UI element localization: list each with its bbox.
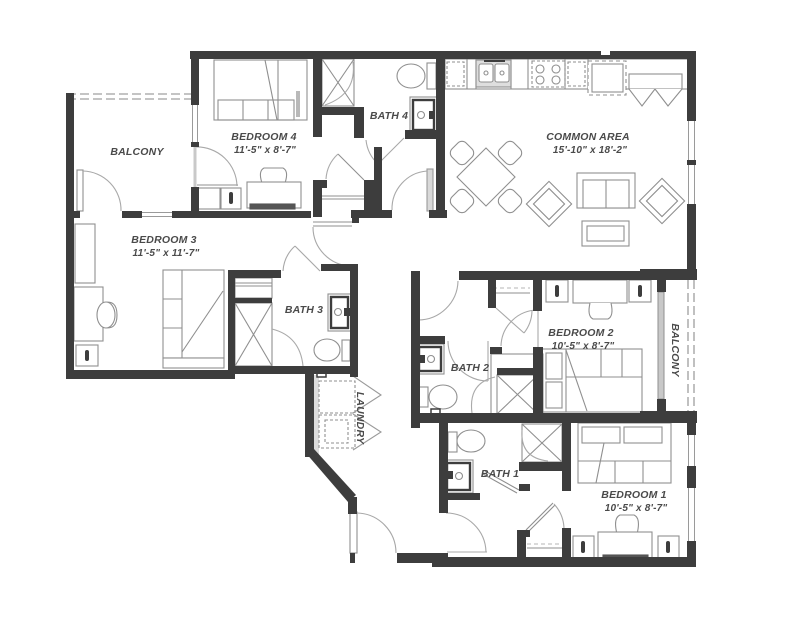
svg-text:BATH 1: BATH 1 [481, 468, 519, 480]
svg-text:BATH 3: BATH 3 [285, 304, 323, 316]
svg-text:COMMON AREA: COMMON AREA [546, 131, 629, 143]
svg-text:BALCONY: BALCONY [669, 323, 681, 377]
svg-text:BEDROOM 3: BEDROOM 3 [131, 234, 196, 246]
svg-text:BATH 4: BATH 4 [370, 110, 408, 122]
svg-text:11'-5" x 11'-7": 11'-5" x 11'-7" [133, 248, 200, 259]
svg-text:BEDROOM 2: BEDROOM 2 [548, 327, 613, 339]
svg-text:11'-5" x 8'-7": 11'-5" x 8'-7" [234, 145, 296, 156]
svg-text:15'-10" x 18'-2": 15'-10" x 18'-2" [553, 145, 627, 156]
svg-text:BATH 2: BATH 2 [451, 362, 489, 374]
svg-text:LAUNDRY: LAUNDRY [354, 392, 366, 445]
svg-text:BEDROOM 1: BEDROOM 1 [601, 489, 666, 501]
svg-text:BALCONY: BALCONY [110, 146, 164, 158]
svg-text:10'-5" x 8'-7": 10'-5" x 8'-7" [552, 341, 615, 352]
svg-text:BEDROOM 4: BEDROOM 4 [231, 131, 296, 143]
svg-text:10'-5" x 8'-7": 10'-5" x 8'-7" [605, 503, 668, 514]
